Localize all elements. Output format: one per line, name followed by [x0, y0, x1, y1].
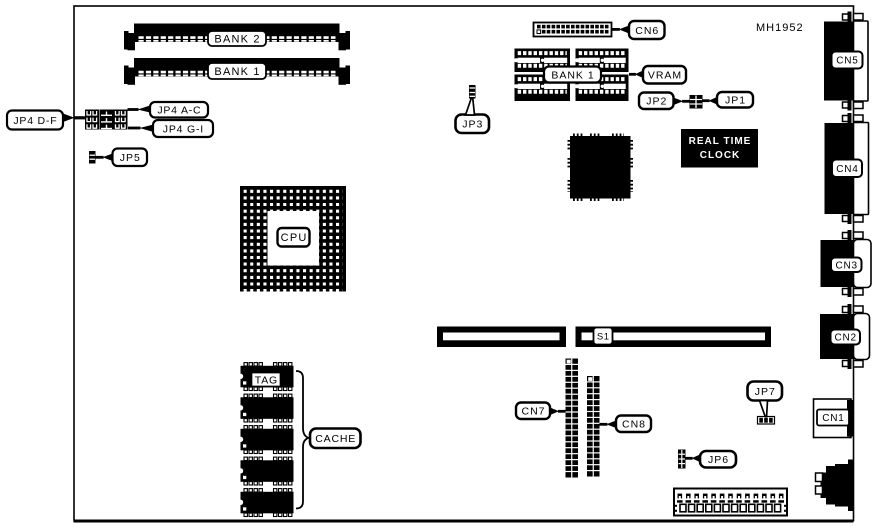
svg-text:BANK 2: BANK 2 — [214, 33, 260, 45]
svg-text:VRAM: VRAM — [648, 70, 682, 82]
svg-text:JP3: JP3 — [462, 119, 483, 131]
svg-text:BANK 1: BANK 1 — [551, 69, 594, 81]
svg-text:JP7: JP7 — [755, 386, 776, 398]
svg-text:S1: S1 — [597, 331, 610, 342]
svg-text:JP4 D-F: JP4 D-F — [13, 115, 57, 127]
svg-text:CN7: CN7 — [521, 406, 545, 418]
svg-text:CN3: CN3 — [835, 260, 857, 271]
svg-text:TAG: TAG — [255, 374, 278, 386]
svg-text:CN5: CN5 — [836, 56, 858, 67]
svg-text:JP6: JP6 — [708, 454, 729, 466]
svg-text:JP1: JP1 — [725, 95, 746, 107]
svg-text:JP5: JP5 — [120, 152, 141, 164]
svg-text:CN8: CN8 — [622, 419, 646, 431]
svg-text:MH1952: MH1952 — [756, 22, 804, 34]
svg-text:CN2: CN2 — [834, 333, 856, 344]
svg-text:CACHE: CACHE — [315, 433, 356, 445]
svg-text:JP2: JP2 — [646, 96, 667, 108]
svg-text:REAL TIME: REAL TIME — [689, 136, 752, 147]
svg-text:JP4 A-C: JP4 A-C — [157, 105, 201, 117]
svg-text:CPU: CPU — [281, 232, 308, 244]
svg-text:BANK 1: BANK 1 — [214, 66, 260, 78]
svg-text:CLOCK: CLOCK — [700, 150, 741, 161]
svg-text:CN4: CN4 — [836, 164, 858, 175]
svg-text:CN1: CN1 — [822, 413, 844, 424]
svg-text:CN6: CN6 — [635, 25, 659, 37]
svg-text:JP4 G-I: JP4 G-I — [163, 123, 204, 135]
